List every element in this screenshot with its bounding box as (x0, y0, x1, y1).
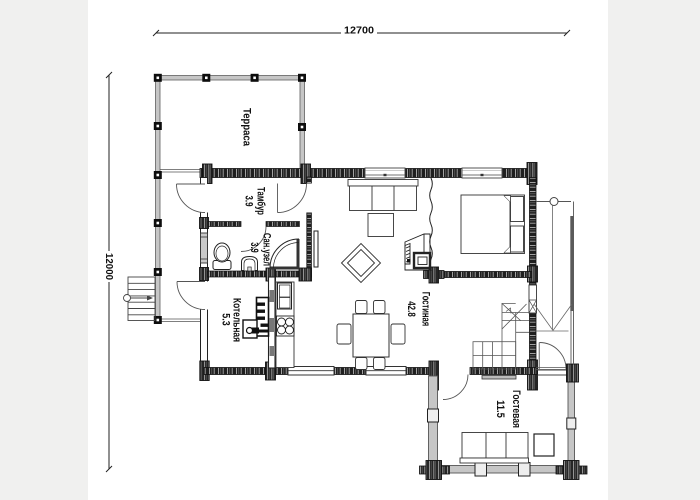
svg-text:Терраса: Терраса (241, 108, 253, 147)
svg-text:5.3: 5.3 (219, 313, 231, 325)
svg-text:Тамбур: Тамбур (255, 187, 267, 215)
svg-text:11.5: 11.5 (494, 400, 506, 418)
svg-text:42.8: 42.8 (405, 301, 417, 317)
svg-text:3.9: 3.9 (243, 196, 255, 207)
svg-text:Гостевая: Гостевая (510, 390, 522, 428)
svg-text:Сан.узел: Сан.узел (261, 233, 273, 266)
svg-text:12700: 12700 (344, 26, 374, 37)
svg-text:Гостиная: Гостиная (420, 292, 432, 327)
svg-text:3.9: 3.9 (248, 242, 260, 253)
svg-text:Котельная: Котельная (231, 298, 243, 342)
svg-text:12000: 12000 (103, 253, 114, 280)
